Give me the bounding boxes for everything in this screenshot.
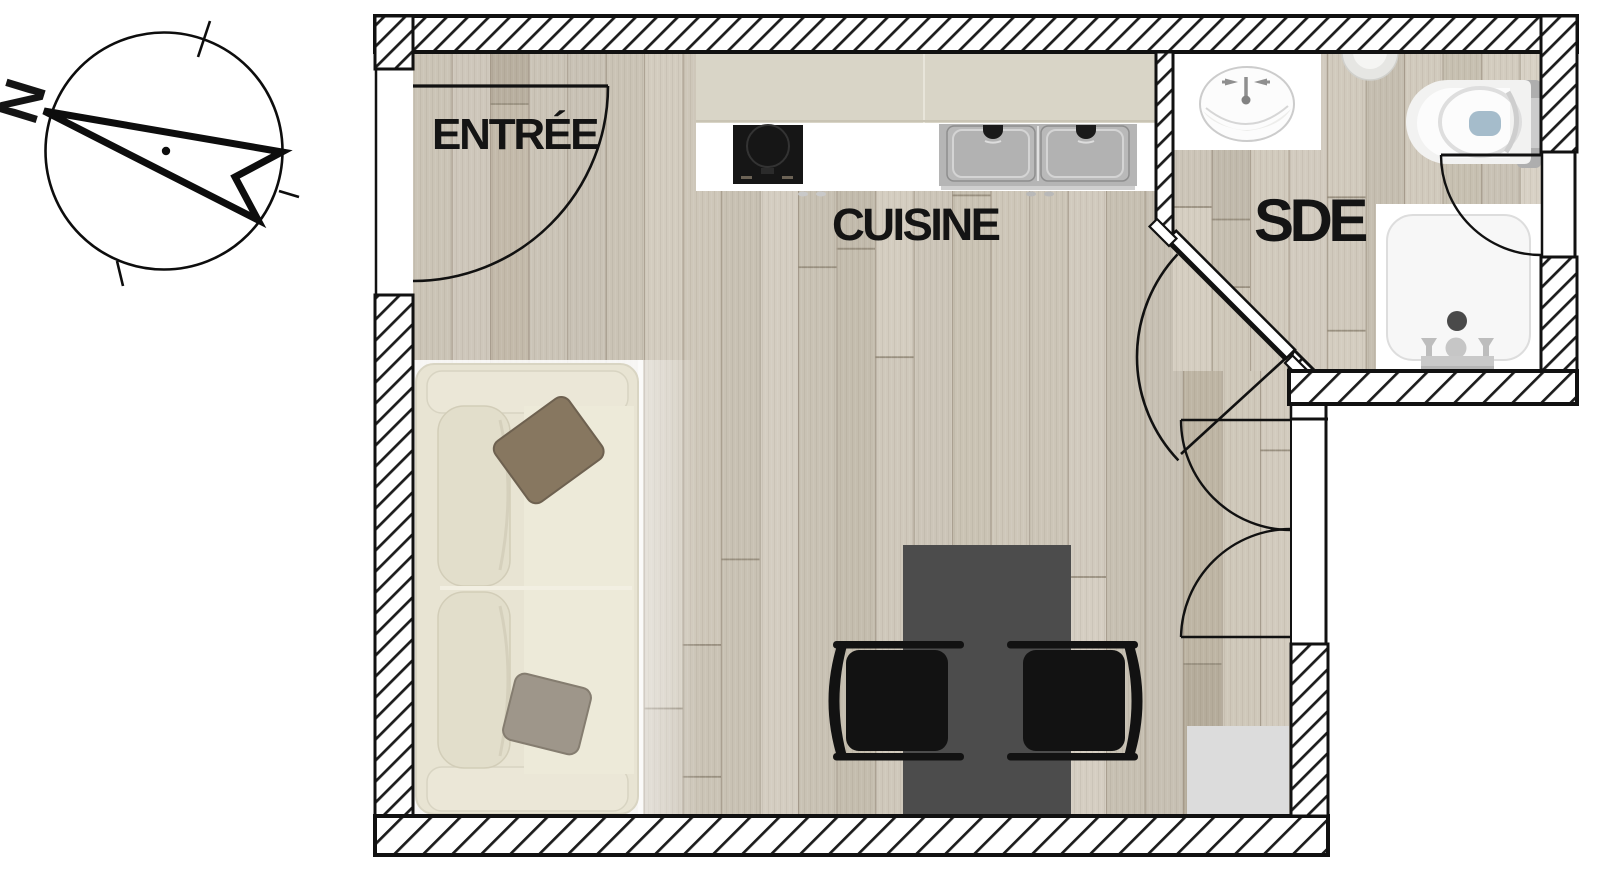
svg-text:CUISINE: CUISINE [832, 199, 1000, 250]
svg-text:SDE: SDE [1254, 187, 1366, 254]
svg-text:ENTRÉE: ENTRÉE [432, 109, 598, 159]
